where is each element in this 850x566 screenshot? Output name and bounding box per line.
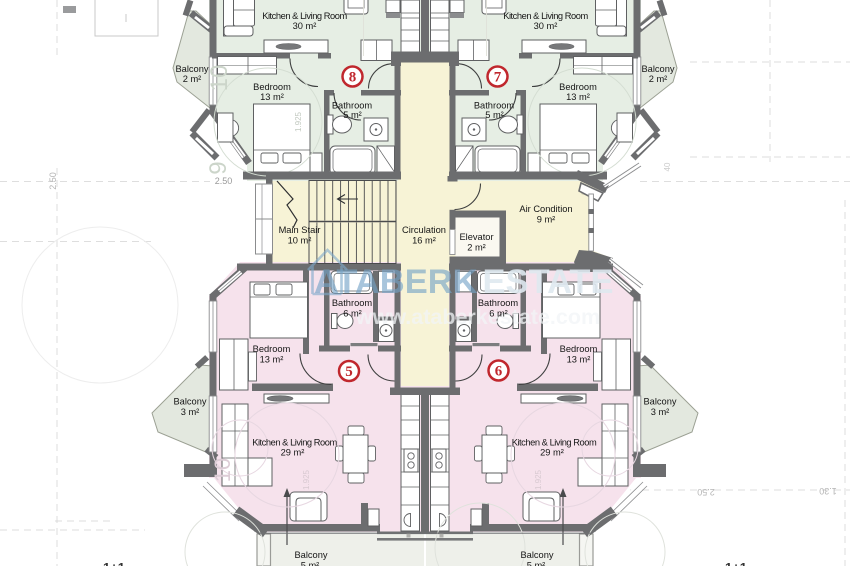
svg-text:2.50: 2.50	[215, 176, 233, 186]
svg-text:3 m²: 3 m²	[651, 407, 670, 417]
svg-text:2.50: 2.50	[697, 487, 715, 497]
svg-text:1+1: 1+1	[725, 560, 747, 566]
svg-text:Kitchen & Living Room: Kitchen & Living Room	[512, 438, 597, 448]
svg-text:Balcony: Balcony	[643, 397, 676, 407]
svg-text:5 m²: 5 m²	[485, 110, 504, 120]
svg-text:6: 6	[495, 364, 503, 380]
svg-text:9 m²: 9 m²	[537, 215, 556, 225]
svg-text:9: 9	[205, 161, 232, 174]
svg-text:3 m²: 3 m²	[181, 407, 200, 417]
svg-text:Circulation: Circulation	[402, 225, 446, 235]
svg-text:Balcony: Balcony	[294, 550, 327, 560]
svg-text:Bedroom: Bedroom	[253, 82, 291, 92]
svg-text:5 m²: 5 m²	[343, 110, 362, 120]
svg-text:ATABERKESTATE: ATABERKESTATE	[314, 263, 614, 301]
svg-text:5: 5	[345, 364, 353, 380]
svg-text:Balcony: Balcony	[173, 397, 206, 407]
svg-text:1.925: 1.925	[294, 111, 303, 132]
svg-text:10: 10	[206, 65, 233, 92]
svg-text:1.925: 1.925	[302, 469, 311, 490]
svg-text:2 m²: 2 m²	[183, 74, 202, 84]
svg-text:Bathroom: Bathroom	[332, 298, 373, 308]
svg-text:13 m²: 13 m²	[260, 355, 284, 365]
svg-text:40: 40	[663, 162, 672, 171]
svg-text:6 m²: 6 m²	[343, 309, 362, 319]
svg-text:30 m²: 30 m²	[534, 21, 558, 31]
svg-text:Bathroom: Bathroom	[474, 101, 515, 111]
svg-text:Kitchen & Living Room: Kitchen & Living Room	[503, 11, 588, 21]
svg-text:13 m²: 13 m²	[567, 355, 591, 365]
svg-text:Bathroom: Bathroom	[478, 298, 519, 308]
svg-text:7: 7	[494, 70, 502, 86]
svg-text:10: 10	[210, 458, 235, 482]
svg-text:Balcony: Balcony	[641, 64, 674, 74]
svg-text:1.925: 1.925	[534, 469, 543, 490]
svg-text:Balcony: Balcony	[175, 64, 208, 74]
svg-text:Bedroom: Bedroom	[559, 82, 597, 92]
svg-text:Bathroom: Bathroom	[332, 101, 373, 111]
svg-text:13 m²: 13 m²	[566, 92, 590, 102]
svg-text:10 m²: 10 m²	[288, 236, 312, 246]
svg-text:1.30: 1.30	[819, 486, 837, 496]
svg-text:16 m²: 16 m²	[412, 236, 436, 246]
svg-text:30 m²: 30 m²	[293, 21, 317, 31]
svg-text:2 m²: 2 m²	[649, 74, 668, 84]
svg-text:2.50: 2.50	[48, 172, 58, 190]
svg-text:8: 8	[349, 70, 357, 86]
svg-text:Main Stair: Main Stair	[279, 225, 321, 235]
svg-text:29 m²: 29 m²	[540, 448, 564, 458]
svg-text:Elevator: Elevator	[459, 232, 493, 242]
svg-text:Bedroom: Bedroom	[253, 344, 291, 354]
svg-text:1+1: 1+1	[103, 560, 125, 566]
svg-text:13 m²: 13 m²	[260, 92, 284, 102]
svg-text:5 m²: 5 m²	[301, 561, 320, 566]
svg-text:Balcony: Balcony	[520, 550, 553, 560]
svg-text:www.ataberkestate.com: www.ataberkestate.com	[355, 305, 600, 329]
svg-text:Kitchen & Living Room: Kitchen & Living Room	[262, 11, 347, 21]
svg-text:Bedroom: Bedroom	[560, 344, 598, 354]
svg-text:Kitchen & Living Room: Kitchen & Living Room	[252, 438, 337, 448]
svg-text:5 m²: 5 m²	[527, 561, 546, 566]
svg-text:2 m²: 2 m²	[467, 243, 486, 253]
svg-text:6 m²: 6 m²	[489, 309, 508, 319]
svg-text:Air Condition: Air Condition	[519, 204, 572, 214]
svg-text:29 m²: 29 m²	[281, 448, 305, 458]
